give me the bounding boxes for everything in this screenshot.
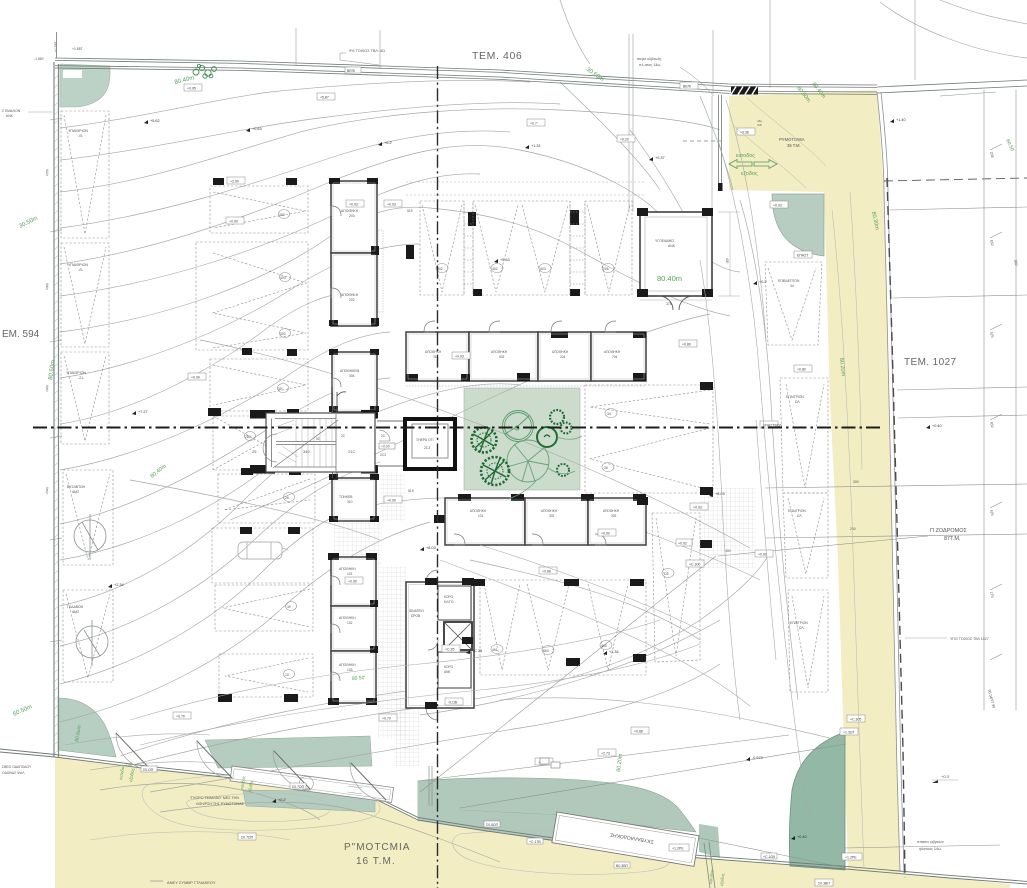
svg-text:+7.27: +7.27 bbox=[138, 410, 148, 414]
svg-text:ΑΠΟΘΗΚΕΜ: ΑΠΟΘΗΚΕΜ bbox=[340, 369, 359, 373]
svg-text:ΛΘΗ/ΡΣΗ ΤΗΣ ΡΥΜΟΤΟΜΑΣ: ΛΘΗ/ΡΣΗ ΤΗΣ ΡΥΜΟΤΟΜΑΣ bbox=[196, 802, 245, 806]
svg-text:ΑΠΟΘΗΚΗ: ΑΠΟΘΗΚΗ bbox=[339, 567, 356, 571]
svg-text:36 Τ.Μ.: 36 Τ.Μ. bbox=[787, 143, 801, 148]
svg-text:30': 30' bbox=[278, 387, 283, 391]
svg-text:ΑΝΚ: ΑΝΚ bbox=[668, 244, 676, 248]
svg-text:+1.2ΡΕ: +1.2ΡΕ bbox=[672, 846, 684, 850]
svg-text:ΒΥΣΑΒΤΩΗ: ΒΥΣΑΒΤΩΗ bbox=[67, 485, 86, 489]
svg-text:+C.305: +C.305 bbox=[850, 717, 861, 721]
svg-text:10: 10 bbox=[285, 673, 289, 677]
svg-text:80 50': 80 50' bbox=[352, 675, 366, 682]
svg-text:σπασα ωβρκων: σπασα ωβρκων bbox=[917, 840, 944, 844]
svg-text:ΑΠΟΘΗΚΗ: ΑΠΟΘΗΚΗ bbox=[541, 509, 558, 513]
svg-text:+C.35: +C.35 bbox=[472, 649, 482, 653]
svg-text:2080: 2080 bbox=[45, 283, 49, 291]
svg-text:ΚΛ/ΓΟ: ΚΛ/ΓΟ bbox=[444, 600, 454, 604]
svg-text:/ΛΚ: /ΛΚ bbox=[757, 123, 762, 127]
svg-text:ΑΝΕΥ ΣΥΜΒΡ ΓΤΛΙΑΚΕΟΥ: ΑΝΕΥ ΣΥΜΒΡ ΓΤΛΙΑΚΕΟΥ bbox=[167, 880, 216, 885]
svg-text:+C.1Ω5: +C.1Ω5 bbox=[763, 855, 775, 859]
svg-text:+5.87: +5.87 bbox=[320, 95, 329, 99]
svg-text:+8.03: +8.03 bbox=[715, 492, 725, 496]
svg-text:-0.ΩΒ: -0.ΩΒ bbox=[448, 700, 458, 704]
svg-text:+0.93: +0.93 bbox=[693, 505, 702, 509]
svg-text:403: 403 bbox=[540, 267, 546, 271]
svg-text:+0.70: +0.70 bbox=[382, 716, 391, 720]
svg-text:463: 463 bbox=[543, 649, 549, 653]
svg-text:300: 300 bbox=[279, 213, 285, 217]
svg-text:ΑΠΟΘΗΚΗ: ΑΠΟΘΗΚΗ bbox=[341, 209, 359, 213]
svg-text:+0.92: +0.92 bbox=[678, 541, 687, 545]
svg-text:ΕΠΑΣΤ: ΕΠΑΣΤ bbox=[797, 253, 809, 257]
svg-text:+5.62: +5.62 bbox=[150, 119, 160, 123]
svg-text:519: 519 bbox=[408, 489, 414, 493]
svg-text:ηϋατους 14ω.: ηϋατους 14ω. bbox=[919, 847, 942, 851]
svg-text:ΡΥΜΟΤΟΜΙΑ: ΡΥΜΟΤΟΜΙΑ bbox=[779, 137, 805, 142]
svg-text:340: 340 bbox=[303, 449, 310, 454]
svg-text:εισοδος: εισοδος bbox=[736, 153, 755, 159]
svg-text:+1.3ΩΤ: +1.3ΩΤ bbox=[843, 730, 856, 734]
svg-text:519: 519 bbox=[407, 209, 413, 213]
svg-text:ΩΡΟΒ: ΩΡΟΒ bbox=[411, 614, 420, 618]
svg-text:87Τ.Μ.: 87Τ.Μ. bbox=[944, 536, 961, 542]
svg-text:34: 34 bbox=[607, 412, 611, 416]
svg-text:+0.88: +0.88 bbox=[542, 569, 551, 573]
svg-text:ΓΩΔΑΒΩΗ: ΓΩΔΑΒΩΗ bbox=[67, 605, 84, 609]
svg-text:+0.2': +0.2' bbox=[759, 280, 767, 284]
svg-text:ΩΛ: ΩΛ bbox=[797, 514, 802, 518]
svg-text:400: 400 bbox=[725, 258, 729, 264]
svg-text:ΑΠΟΘΗΚΗ: ΑΠΟΘΗΚΗ bbox=[425, 350, 442, 354]
svg-text:203: 203 bbox=[349, 214, 355, 218]
svg-text:21C: 21C bbox=[348, 449, 355, 454]
svg-text:+0.80: +0.80 bbox=[682, 342, 691, 346]
svg-text:ΤΕΜ. 406: ΤΕΜ. 406 bbox=[472, 50, 522, 62]
svg-text:ΤΟΗΚΕΒ: ΤΟΗΚΕΒ bbox=[339, 495, 353, 499]
svg-text:2C3: 2C3 bbox=[380, 453, 386, 457]
svg-text:ΑΝΚ: ΑΝΚ bbox=[444, 670, 451, 674]
svg-text:+0.90: +0.90 bbox=[387, 498, 396, 502]
svg-text:Β0.3ΒΠ: Β0.3ΒΠ bbox=[616, 864, 629, 868]
svg-text:+1.40: +1.40 bbox=[896, 118, 906, 122]
svg-text:+0.90: +0.90 bbox=[758, 552, 767, 556]
svg-text:ΑΝΚ: ΑΝΚ bbox=[6, 114, 14, 118]
svg-text:πλ,ατος 14ω.: πλ,ατος 14ω. bbox=[639, 63, 661, 67]
svg-text:+1.88Τ: +1.88Τ bbox=[72, 47, 83, 51]
svg-text:+C.17Β: +C.17Β bbox=[529, 840, 541, 844]
svg-text:ΒΕΠΙ: ΒΕΠΙ bbox=[347, 69, 355, 73]
svg-text:310: 310 bbox=[347, 500, 353, 504]
svg-text:300: 300 bbox=[725, 549, 731, 553]
svg-text:+C.300: +C.300 bbox=[689, 562, 700, 566]
svg-text:ΑΠΟΘΗΚΗ: ΑΠΟΘΗΚΗ bbox=[604, 350, 621, 354]
svg-text:465: 465 bbox=[601, 644, 607, 648]
svg-text:+0.2': +0.2' bbox=[384, 141, 392, 145]
svg-text:+0.37: +0.37 bbox=[655, 156, 665, 160]
svg-text:ΥΓΟΕΙΔΜΚΣ: ΥΓΟΕΙΔΜΚΣ bbox=[655, 239, 674, 243]
svg-text:ΥΠΟ ΤΟΙΧΟΣ ΤΒΛ 1027: ΥΠΟ ΤΟΙΧΟΣ ΤΒΛ 1027 bbox=[950, 637, 989, 641]
svg-text:ΥΠΑΙΘΡΙΟΝ: ΥΠΑΙΘΡΙΟΝ bbox=[68, 129, 88, 133]
svg-text:+C.35: +C.35 bbox=[445, 647, 454, 651]
svg-text:ΥΠΑΙΘΡΙΟΝ: ΥΠΑΙΘΡΙΟΝ bbox=[66, 371, 86, 375]
svg-text:204: 204 bbox=[560, 355, 566, 359]
svg-text:ΑΠΟΘΗΚΗ: ΑΠΟΘΗΚΗ bbox=[603, 509, 620, 513]
svg-text:402: 402 bbox=[492, 267, 498, 271]
svg-text:300: 300 bbox=[280, 276, 286, 280]
svg-text:ΣΒΕΟ ΟΔΑΠΟΔΟΥ: ΣΒΕΟ ΟΔΑΠΟΔΟΥ bbox=[2, 765, 32, 769]
svg-text:C6': C6' bbox=[664, 572, 669, 576]
svg-text:302: 302 bbox=[549, 514, 555, 518]
svg-text:+8.03: +8.03 bbox=[426, 546, 436, 550]
svg-text:+2.90: +2.90 bbox=[230, 179, 239, 183]
svg-text:461: 461 bbox=[492, 648, 498, 652]
svg-text:+0.00: +0.00 bbox=[381, 445, 390, 449]
svg-text:2250: 2250 bbox=[45, 169, 49, 177]
svg-text:+2.73: +2.73 bbox=[601, 751, 610, 755]
svg-text:375: 375 bbox=[666, 302, 672, 306]
svg-text:2040: 2040 bbox=[45, 487, 49, 495]
svg-text:ΟΔΟΝΔΣ ΨΑΛ: ΟΔΟΝΔΣ ΨΑΛ bbox=[2, 771, 25, 775]
svg-text:+0.20: +0.20 bbox=[620, 137, 629, 141]
svg-text:304: 304 bbox=[349, 374, 355, 378]
svg-text:-Θ-: -Θ- bbox=[78, 268, 84, 272]
svg-text:ΑΜΣ: ΑΜΣ bbox=[72, 490, 79, 494]
svg-text:+0.70: +0.70 bbox=[176, 714, 185, 718]
svg-text:Σ0.7ΩΠ: Σ0.7ΩΠ bbox=[241, 835, 254, 839]
svg-text:+0.90: +0.90 bbox=[348, 579, 357, 583]
svg-text:ΑΠΟΘΗΚΗ: ΑΠΟΘΗΚΗ bbox=[470, 509, 487, 513]
svg-text:280: 280 bbox=[245, 435, 251, 439]
svg-text:16 Τ.Μ.: 16 Τ.Μ. bbox=[356, 856, 396, 867]
svg-text:402: 402 bbox=[499, 355, 505, 359]
svg-text:Σ0.7ΩΠ: Σ0.7ΩΠ bbox=[292, 785, 305, 789]
svg-text:26: 26 bbox=[285, 496, 289, 500]
svg-text:Σ0.ΩΠ: Σ0.ΩΠ bbox=[143, 768, 154, 772]
svg-text:"ΓΚΟΡΟ ΤΕΙΜΛΒΟ" ΜΕΣ ΤΗΝ: "ΓΚΟΡΟ ΤΕΙΜΛΒΟ" ΜΕΣ ΤΗΝ bbox=[190, 796, 239, 800]
svg-text:ΚΟΡΟ: ΚΟΡΟ bbox=[444, 595, 454, 599]
svg-text:+2.34: +2.34 bbox=[114, 583, 124, 587]
svg-text:9% ΤΟΙΧΟΣ ΤΒΛ: 4Ω: 9% ΤΟΙΧΟΣ ΤΒΛ: 4Ω bbox=[349, 49, 385, 53]
svg-text:+1.31: +1.31 bbox=[531, 144, 541, 148]
svg-text:101: 101 bbox=[347, 572, 353, 576]
svg-text:30: 30 bbox=[287, 605, 291, 609]
svg-text:Π ΖΟΔΡΟΜΟΣ: Π ΖΟΔΡΟΜΟΣ bbox=[930, 528, 968, 534]
svg-text:ΕΠΙΒΛΕΠΤΟΝ: ΕΠΙΒΛΕΠΤΟΝ bbox=[778, 279, 800, 283]
svg-text:300: 300 bbox=[853, 480, 859, 484]
svg-text:+0.93: +0.93 bbox=[455, 354, 464, 358]
svg-text:206: 206 bbox=[603, 267, 609, 271]
svg-text:ΑΜΣ: ΑΜΣ bbox=[72, 610, 79, 614]
svg-text:2C3: 2C3 bbox=[424, 446, 430, 450]
svg-text:+0.40: +0.40 bbox=[932, 424, 942, 428]
svg-text:-1.88Υ: -1.88Υ bbox=[34, 57, 45, 61]
svg-text:Σ0.3ΒΠ: Σ0.3ΒΠ bbox=[818, 881, 830, 885]
svg-text:+0.90: +0.90 bbox=[601, 531, 610, 535]
svg-text:ΤΕΜ. 1027: ΤΕΜ. 1027 bbox=[904, 357, 957, 368]
svg-text:+1.34: +1.34 bbox=[609, 650, 619, 654]
svg-text:ΑΠΟΘΗΚΗ: ΑΠΟΘΗΚΗ bbox=[491, 350, 508, 354]
svg-text:-Θ-: -Θ- bbox=[78, 134, 84, 138]
svg-text:+5.63: +5.63 bbox=[500, 258, 510, 262]
svg-text:-0.970: -0.970 bbox=[752, 756, 763, 760]
svg-text:Σ0.5ΩΠ: Σ0.5ΩΠ bbox=[486, 823, 499, 827]
svg-text:202: 202 bbox=[349, 298, 355, 302]
svg-text:+0.95: +0.95 bbox=[187, 86, 196, 90]
svg-text:+1.98Τ: +1.98Τ bbox=[54, 41, 58, 52]
svg-text:+0.40: +0.40 bbox=[797, 835, 807, 839]
svg-text:ΕΠΑΙΤΡΙΟΝ: ΕΠΑΙΤΡΙΟΝ bbox=[788, 509, 806, 513]
svg-text:Ρ"ΜΟΤϹΜΙΑ: Ρ"ΜΟΤϹΜΙΑ bbox=[344, 842, 410, 853]
svg-text:+0.80: +0.80 bbox=[797, 367, 806, 371]
svg-text:ΕΠΑΙΤΡΙΟΝ: ΕΠΑΙΤΡΙΟΝ bbox=[790, 621, 808, 625]
svg-text:+0.93: +0.93 bbox=[387, 202, 396, 206]
svg-text:+0.88: +0.88 bbox=[634, 729, 643, 733]
svg-text:εξοδος: εξοδος bbox=[741, 171, 758, 177]
svg-text:ΩΛ: ΩΛ bbox=[795, 400, 800, 404]
svg-text:+0.3': +0.3' bbox=[941, 774, 950, 779]
svg-text:ΙΩΝΑΤΕΙΟ: ΙΩΝΑΤΕΙΟ bbox=[409, 609, 424, 613]
svg-text:ΑΠΟΘΗΚΗ: ΑΠΟΘΗΚΗ bbox=[339, 663, 356, 667]
svg-text:34: 34 bbox=[790, 284, 794, 288]
svg-text:1900: 1900 bbox=[45, 385, 49, 393]
svg-text:ΕΜ. 594: ΕΜ. 594 bbox=[2, 329, 40, 340]
svg-text:+0.90: +0.90 bbox=[229, 219, 238, 223]
svg-text:ΚΟΡΟ: ΚΟΡΟ bbox=[444, 665, 454, 669]
svg-text:+0.2': +0.2' bbox=[278, 798, 286, 802]
svg-text:σιερο κλβουλη: σιερο κλβουλη bbox=[637, 57, 661, 61]
svg-text:+0.7': +0.7' bbox=[530, 121, 538, 125]
svg-text:+0.93: +0.93 bbox=[349, 202, 358, 206]
svg-text:ΑΠΟΘΗΚΗ: ΑΠΟΘΗΚΗ bbox=[339, 616, 356, 620]
svg-text:102: 102 bbox=[347, 621, 353, 625]
svg-text:704: 704 bbox=[612, 355, 618, 359]
svg-text:ΑΠΟΘΗΚΗ: ΑΠΟΘΗΚΗ bbox=[341, 293, 359, 297]
svg-text:92: 92 bbox=[316, 437, 320, 441]
svg-text:+0.93: +0.93 bbox=[773, 203, 782, 207]
svg-text:2C: 2C bbox=[341, 434, 346, 438]
svg-text:ΩΛ: ΩΛ bbox=[799, 626, 804, 630]
svg-text:ΑΠΟΘΗΚΗ: ΑΠΟΘΗΚΗ bbox=[552, 350, 569, 354]
svg-text:36: 36 bbox=[604, 466, 608, 470]
svg-text:250: 250 bbox=[850, 527, 856, 531]
svg-text:25: 25 bbox=[252, 449, 257, 454]
svg-text:+0.90: +0.90 bbox=[191, 375, 200, 379]
svg-text:101: 101 bbox=[478, 514, 484, 518]
svg-text:ΒΕΠΙ: ΒΕΠΙ bbox=[683, 84, 691, 88]
svg-text:Σ ΕΜΑΛΙΟΝ: Σ ΕΜΑΛΙΟΝ bbox=[2, 109, 21, 113]
svg-text:2C: 2C bbox=[381, 434, 386, 438]
svg-text:80.40m: 80.40m bbox=[657, 274, 682, 283]
svg-text:+1.2ΡΕ: +1.2ΡΕ bbox=[845, 855, 857, 859]
svg-text:ΞΗΕΡΑ ΟΤΙ: ΞΗΕΡΑ ΟΤΙ bbox=[416, 438, 434, 442]
svg-text:303: 303 bbox=[611, 514, 617, 518]
svg-text:300: 300 bbox=[280, 332, 286, 336]
svg-text:-21-: -21- bbox=[78, 376, 85, 380]
svg-text:ΕΠΑΙΤΡΙΟΝ: ΕΠΑΙΤΡΙΟΝ bbox=[786, 395, 804, 399]
svg-text:ΥΠΑΙΘΡΙΟΝ: ΥΠΑΙΘΡΙΟΝ bbox=[68, 263, 88, 267]
svg-text:+0.63: +0.63 bbox=[252, 127, 262, 131]
